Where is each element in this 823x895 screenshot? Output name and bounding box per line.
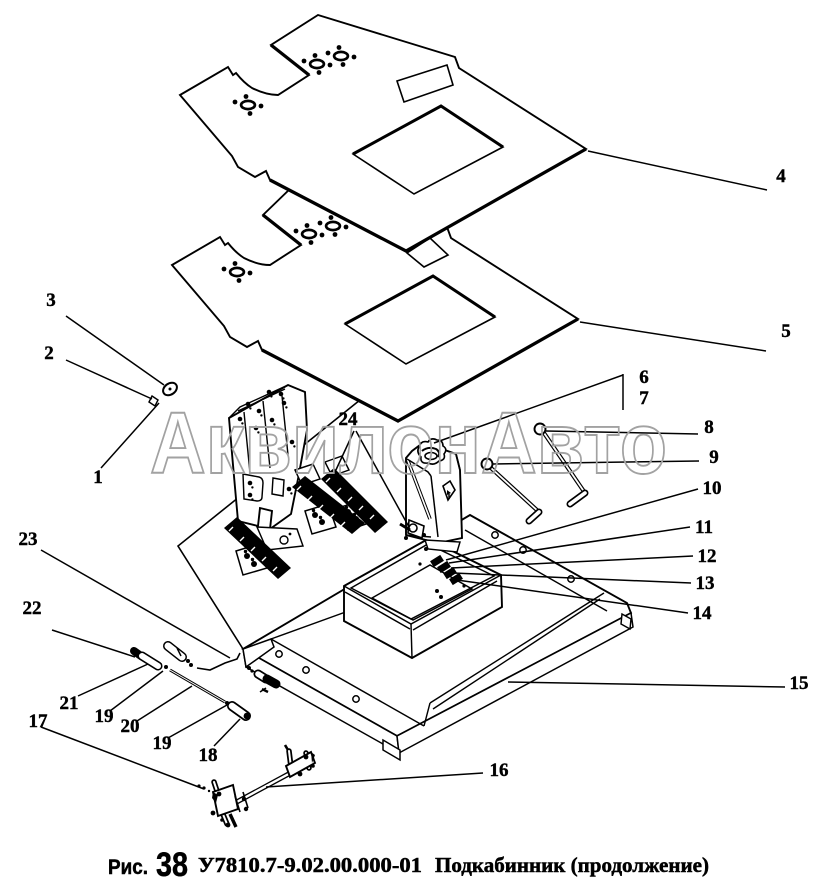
svg-text:15: 15 — [790, 673, 809, 694]
svg-text:Подкабинник (продолжение): Подкабинник (продолжение) — [435, 853, 709, 877]
svg-text:Рис.: Рис. — [108, 856, 148, 879]
svg-text:13: 13 — [696, 573, 715, 594]
svg-text:20: 20 — [121, 716, 140, 737]
svg-text:10: 10 — [703, 478, 722, 499]
svg-text:6: 6 — [639, 367, 649, 388]
svg-text:3: 3 — [46, 290, 56, 311]
svg-text:1: 1 — [93, 467, 103, 488]
svg-text:17: 17 — [29, 711, 49, 732]
svg-text:21: 21 — [60, 693, 79, 714]
svg-text:9: 9 — [709, 447, 719, 468]
svg-text:16: 16 — [490, 760, 509, 781]
svg-text:14: 14 — [693, 603, 713, 624]
svg-text:18: 18 — [199, 745, 218, 766]
svg-text:11: 11 — [695, 517, 713, 538]
svg-text:АквилонАвто: АквилонАвто — [150, 395, 667, 492]
svg-text:8: 8 — [704, 417, 714, 438]
svg-text:У7810.7-9.02.00.000-01: У7810.7-9.02.00.000-01 — [198, 853, 422, 877]
svg-text:2: 2 — [44, 343, 54, 364]
svg-text:38: 38 — [156, 846, 188, 884]
svg-text:12: 12 — [698, 546, 717, 567]
svg-text:5: 5 — [781, 321, 791, 342]
svg-text:19: 19 — [95, 706, 114, 727]
svg-text:22: 22 — [23, 598, 42, 619]
svg-text:4: 4 — [776, 166, 786, 187]
svg-text:23: 23 — [19, 529, 38, 550]
svg-text:19: 19 — [153, 733, 172, 754]
